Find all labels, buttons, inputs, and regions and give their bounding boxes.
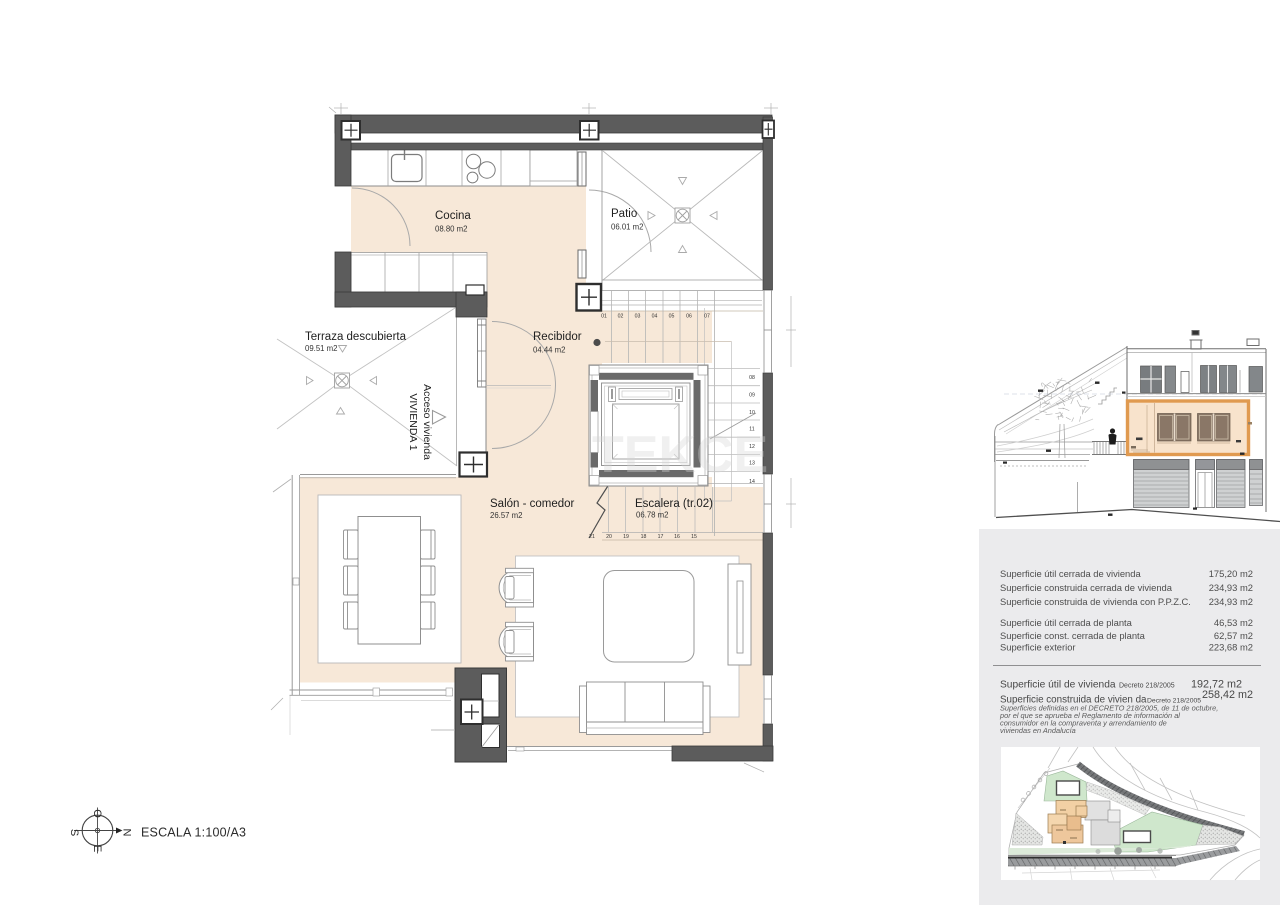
svg-text:Decreto 218/2005: Decreto 218/2005 xyxy=(1119,683,1175,690)
svg-text:06.78 m2: 06.78 m2 xyxy=(636,511,669,520)
svg-text:09: 09 xyxy=(749,393,755,399)
svg-text:Superficie útil cerrada de viv: Superficie útil cerrada de vivienda xyxy=(1000,568,1141,579)
svg-text:26.57 m2: 26.57 m2 xyxy=(490,511,523,520)
svg-text:Superficie construida de vivie: Superficie construida de vivienda con P.… xyxy=(1000,596,1191,607)
svg-text:18: 18 xyxy=(641,534,647,540)
svg-text:Acceso vivienda: Acceso vivienda xyxy=(421,384,433,460)
svg-text:46,53 m2: 46,53 m2 xyxy=(1214,617,1253,628)
svg-text:09.51 m2: 09.51 m2 xyxy=(305,344,338,353)
svg-text:04: 04 xyxy=(652,314,658,320)
svg-text:07: 07 xyxy=(704,314,710,320)
svg-text:234,93 m2: 234,93 m2 xyxy=(1209,596,1253,607)
svg-text:258,42 m2: 258,42 m2 xyxy=(1202,689,1253,701)
svg-text:Superficie const. cerrada de p: Superficie const. cerrada de planta xyxy=(1000,630,1146,641)
svg-text:Superficie exterior: Superficie exterior xyxy=(1000,642,1076,653)
svg-text:15: 15 xyxy=(691,534,697,540)
svg-text:175,20 m2: 175,20 m2 xyxy=(1209,568,1253,579)
svg-text:Salón - comedor: Salón - comedor xyxy=(490,498,575,510)
svg-text:Patio: Patio xyxy=(611,208,637,220)
svg-text:E: E xyxy=(91,845,103,852)
svg-text:viviendas en Andalucía: viviendas en Andalucía xyxy=(1000,726,1076,735)
svg-text:62,57 m2: 62,57 m2 xyxy=(1214,630,1253,641)
svg-text:N: N xyxy=(121,829,133,837)
svg-text:Superficie útil cerrada de pla: Superficie útil cerrada de planta xyxy=(1000,617,1133,628)
svg-text:Recibidor: Recibidor xyxy=(533,331,582,343)
svg-text:06.01 m2: 06.01 m2 xyxy=(611,223,644,232)
svg-text:234,93 m2: 234,93 m2 xyxy=(1209,582,1253,593)
svg-text:19: 19 xyxy=(623,534,629,540)
svg-text:TEKCE: TEKCE xyxy=(592,426,768,484)
svg-text:17: 17 xyxy=(658,534,664,540)
svg-text:VIVIENDA 1: VIVIENDA 1 xyxy=(407,393,419,450)
svg-text:10: 10 xyxy=(749,410,755,416)
svg-text:08: 08 xyxy=(749,375,755,381)
svg-text:08.80 m2: 08.80 m2 xyxy=(435,225,468,234)
svg-text:223,68 m2: 223,68 m2 xyxy=(1209,642,1253,653)
svg-text:ESCALA 1:100/A3: ESCALA 1:100/A3 xyxy=(141,826,246,840)
svg-text:Terraza descubierta: Terraza descubierta xyxy=(305,331,407,343)
svg-text:01: 01 xyxy=(601,314,607,320)
svg-text:06: 06 xyxy=(686,314,692,320)
svg-text:O: O xyxy=(91,809,103,818)
svg-text:Superficie construida cerrada: Superficie construida cerrada de viviend… xyxy=(1000,582,1173,593)
svg-text:02: 02 xyxy=(618,314,624,320)
svg-text:Escalera (tr.02): Escalera (tr.02) xyxy=(635,498,713,510)
svg-text:03: 03 xyxy=(635,314,641,320)
svg-text:20: 20 xyxy=(606,534,612,540)
svg-text:S: S xyxy=(68,829,80,836)
svg-text:04.44 m2: 04.44 m2 xyxy=(533,346,566,355)
svg-text:Superficie útil de vivienda: Superficie útil de vivienda xyxy=(1000,680,1116,691)
svg-text:21: 21 xyxy=(589,534,595,540)
svg-text:16: 16 xyxy=(674,534,680,540)
svg-text:05: 05 xyxy=(669,314,675,320)
svg-text:Cocina: Cocina xyxy=(435,210,471,222)
